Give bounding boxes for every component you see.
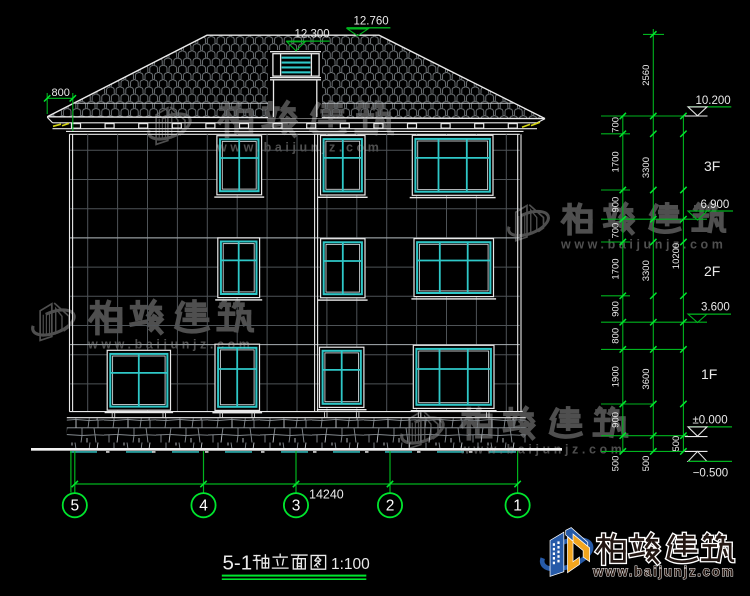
svg-text:2F: 2F — [704, 263, 720, 279]
svg-text:−0.500: −0.500 — [693, 467, 729, 479]
svg-text:www.baijunjz.com: www.baijunjz.com — [592, 564, 735, 579]
svg-text:6.900: 6.900 — [701, 199, 730, 211]
svg-text:700: 700 — [610, 117, 621, 133]
svg-text:www.baijunjz.com: www.baijunjz.com — [216, 141, 382, 155]
svg-text:700: 700 — [610, 223, 621, 239]
svg-text:3300: 3300 — [641, 157, 652, 178]
svg-text:5: 5 — [70, 498, 79, 515]
svg-text:10.200: 10.200 — [696, 95, 731, 107]
svg-text:3F: 3F — [704, 158, 720, 174]
svg-text:3: 3 — [292, 498, 301, 515]
svg-text:12.300: 12.300 — [295, 29, 330, 41]
svg-text:500: 500 — [610, 456, 621, 472]
svg-text:800: 800 — [52, 87, 70, 99]
svg-text:1F: 1F — [701, 366, 717, 382]
svg-text:900: 900 — [610, 412, 621, 428]
svg-text:1900: 1900 — [610, 366, 621, 387]
svg-text:2560: 2560 — [641, 65, 652, 86]
svg-text:5-1: 5-1 — [223, 552, 253, 575]
svg-text:500: 500 — [671, 436, 682, 452]
svg-text:1700: 1700 — [610, 151, 621, 172]
svg-text:3.600: 3.600 — [701, 302, 730, 314]
svg-text:1700: 1700 — [610, 258, 621, 279]
svg-text:800: 800 — [610, 328, 621, 344]
svg-text:1:100: 1:100 — [331, 556, 370, 573]
svg-text:1: 1 — [513, 498, 522, 515]
svg-text:900: 900 — [610, 197, 621, 213]
svg-text:3300: 3300 — [641, 260, 652, 281]
svg-text:2: 2 — [386, 498, 395, 515]
svg-text:500: 500 — [641, 456, 652, 472]
svg-text:3600: 3600 — [641, 368, 652, 389]
svg-text:±0.000: ±0.000 — [693, 415, 728, 427]
svg-text:10200: 10200 — [671, 243, 682, 269]
svg-text:900: 900 — [610, 301, 621, 317]
svg-text:www.baijunjz.com: www.baijunjz.com — [87, 338, 253, 352]
svg-text:www.baijunjz.com: www.baijunjz.com — [560, 238, 726, 252]
svg-text:4: 4 — [199, 498, 208, 515]
svg-text:14240: 14240 — [309, 488, 344, 502]
svg-text:12.760: 12.760 — [354, 16, 389, 28]
